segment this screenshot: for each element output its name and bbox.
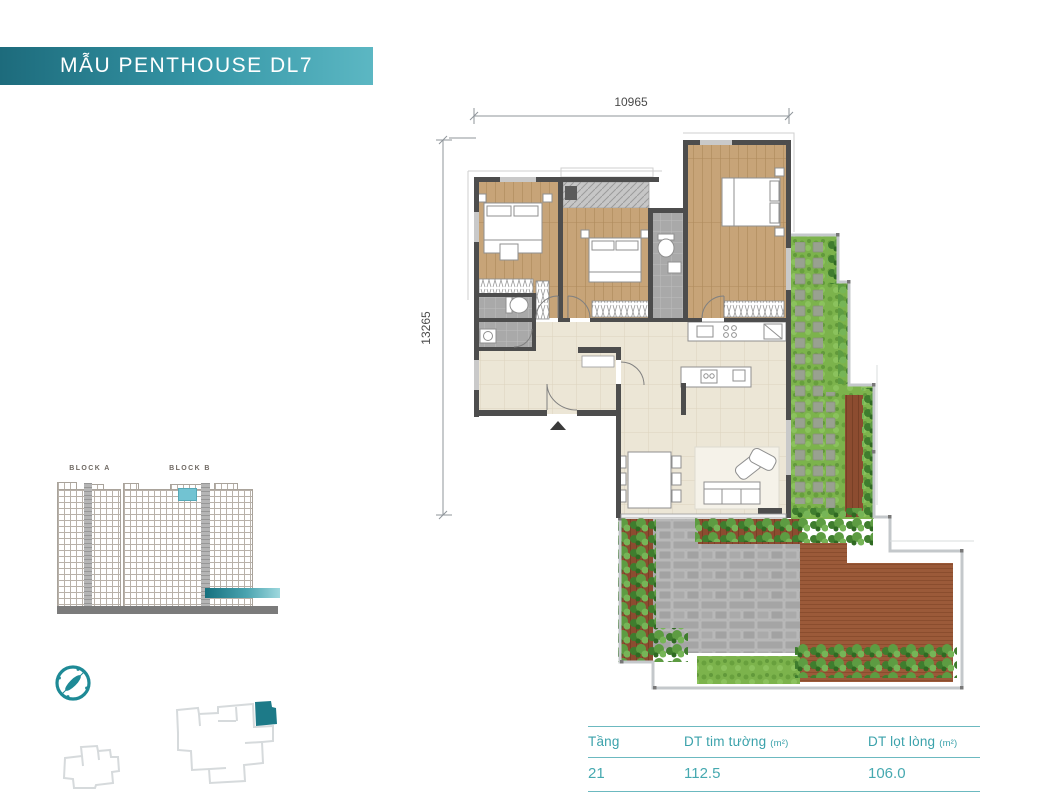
dining-table	[628, 452, 671, 508]
bed-1	[477, 194, 552, 260]
master-bedroom-floor	[688, 145, 786, 318]
dim-width-label: 10965	[614, 95, 648, 109]
area-table: Tầng DT tim tường (m²) DT lọt lòng (m²) …	[588, 726, 980, 792]
sofa	[704, 482, 760, 504]
wood-walkway	[845, 395, 863, 517]
reference-lines	[877, 365, 974, 541]
col-net-header: DT lọt lòng (m²)	[868, 734, 980, 749]
entry-arrow-icon	[550, 421, 566, 430]
kitchen-counter	[688, 322, 786, 341]
glass-wall	[621, 514, 786, 518]
stepping-stones	[826, 392, 842, 510]
area-table-value-row: 21 112.5 106.0	[588, 757, 980, 792]
desk	[500, 244, 518, 260]
col-gross-header: DT tim tường (m²)	[684, 734, 868, 749]
wood-deck	[800, 543, 847, 660]
door-opening	[616, 360, 621, 384]
floor-value: 21	[588, 765, 684, 782]
ledge-ac-unit	[565, 186, 577, 200]
hedge	[791, 508, 873, 546]
dim-height-label: 13265	[419, 311, 433, 345]
net-area-value: 106.0	[868, 765, 980, 782]
terrace	[618, 514, 957, 684]
master-bed	[722, 168, 784, 236]
hedge	[622, 628, 688, 662]
area-table-header-row: Tầng DT tim tường (m²) DT lọt lòng (m²)	[588, 726, 980, 757]
bed-2	[581, 230, 649, 282]
gross-area-value: 112.5	[684, 765, 868, 782]
kitchen-island	[681, 367, 751, 387]
roof-garden	[791, 235, 874, 546]
lawn	[697, 656, 800, 684]
page: MẪU PENTHOUSE DL7 BLOCK A BLOCK B	[0, 0, 1050, 808]
floor-plan: 10965 13265	[0, 0, 1050, 808]
stepping-stones	[795, 242, 823, 504]
hedge	[795, 644, 957, 678]
col-floor-header: Tầng	[588, 734, 684, 749]
